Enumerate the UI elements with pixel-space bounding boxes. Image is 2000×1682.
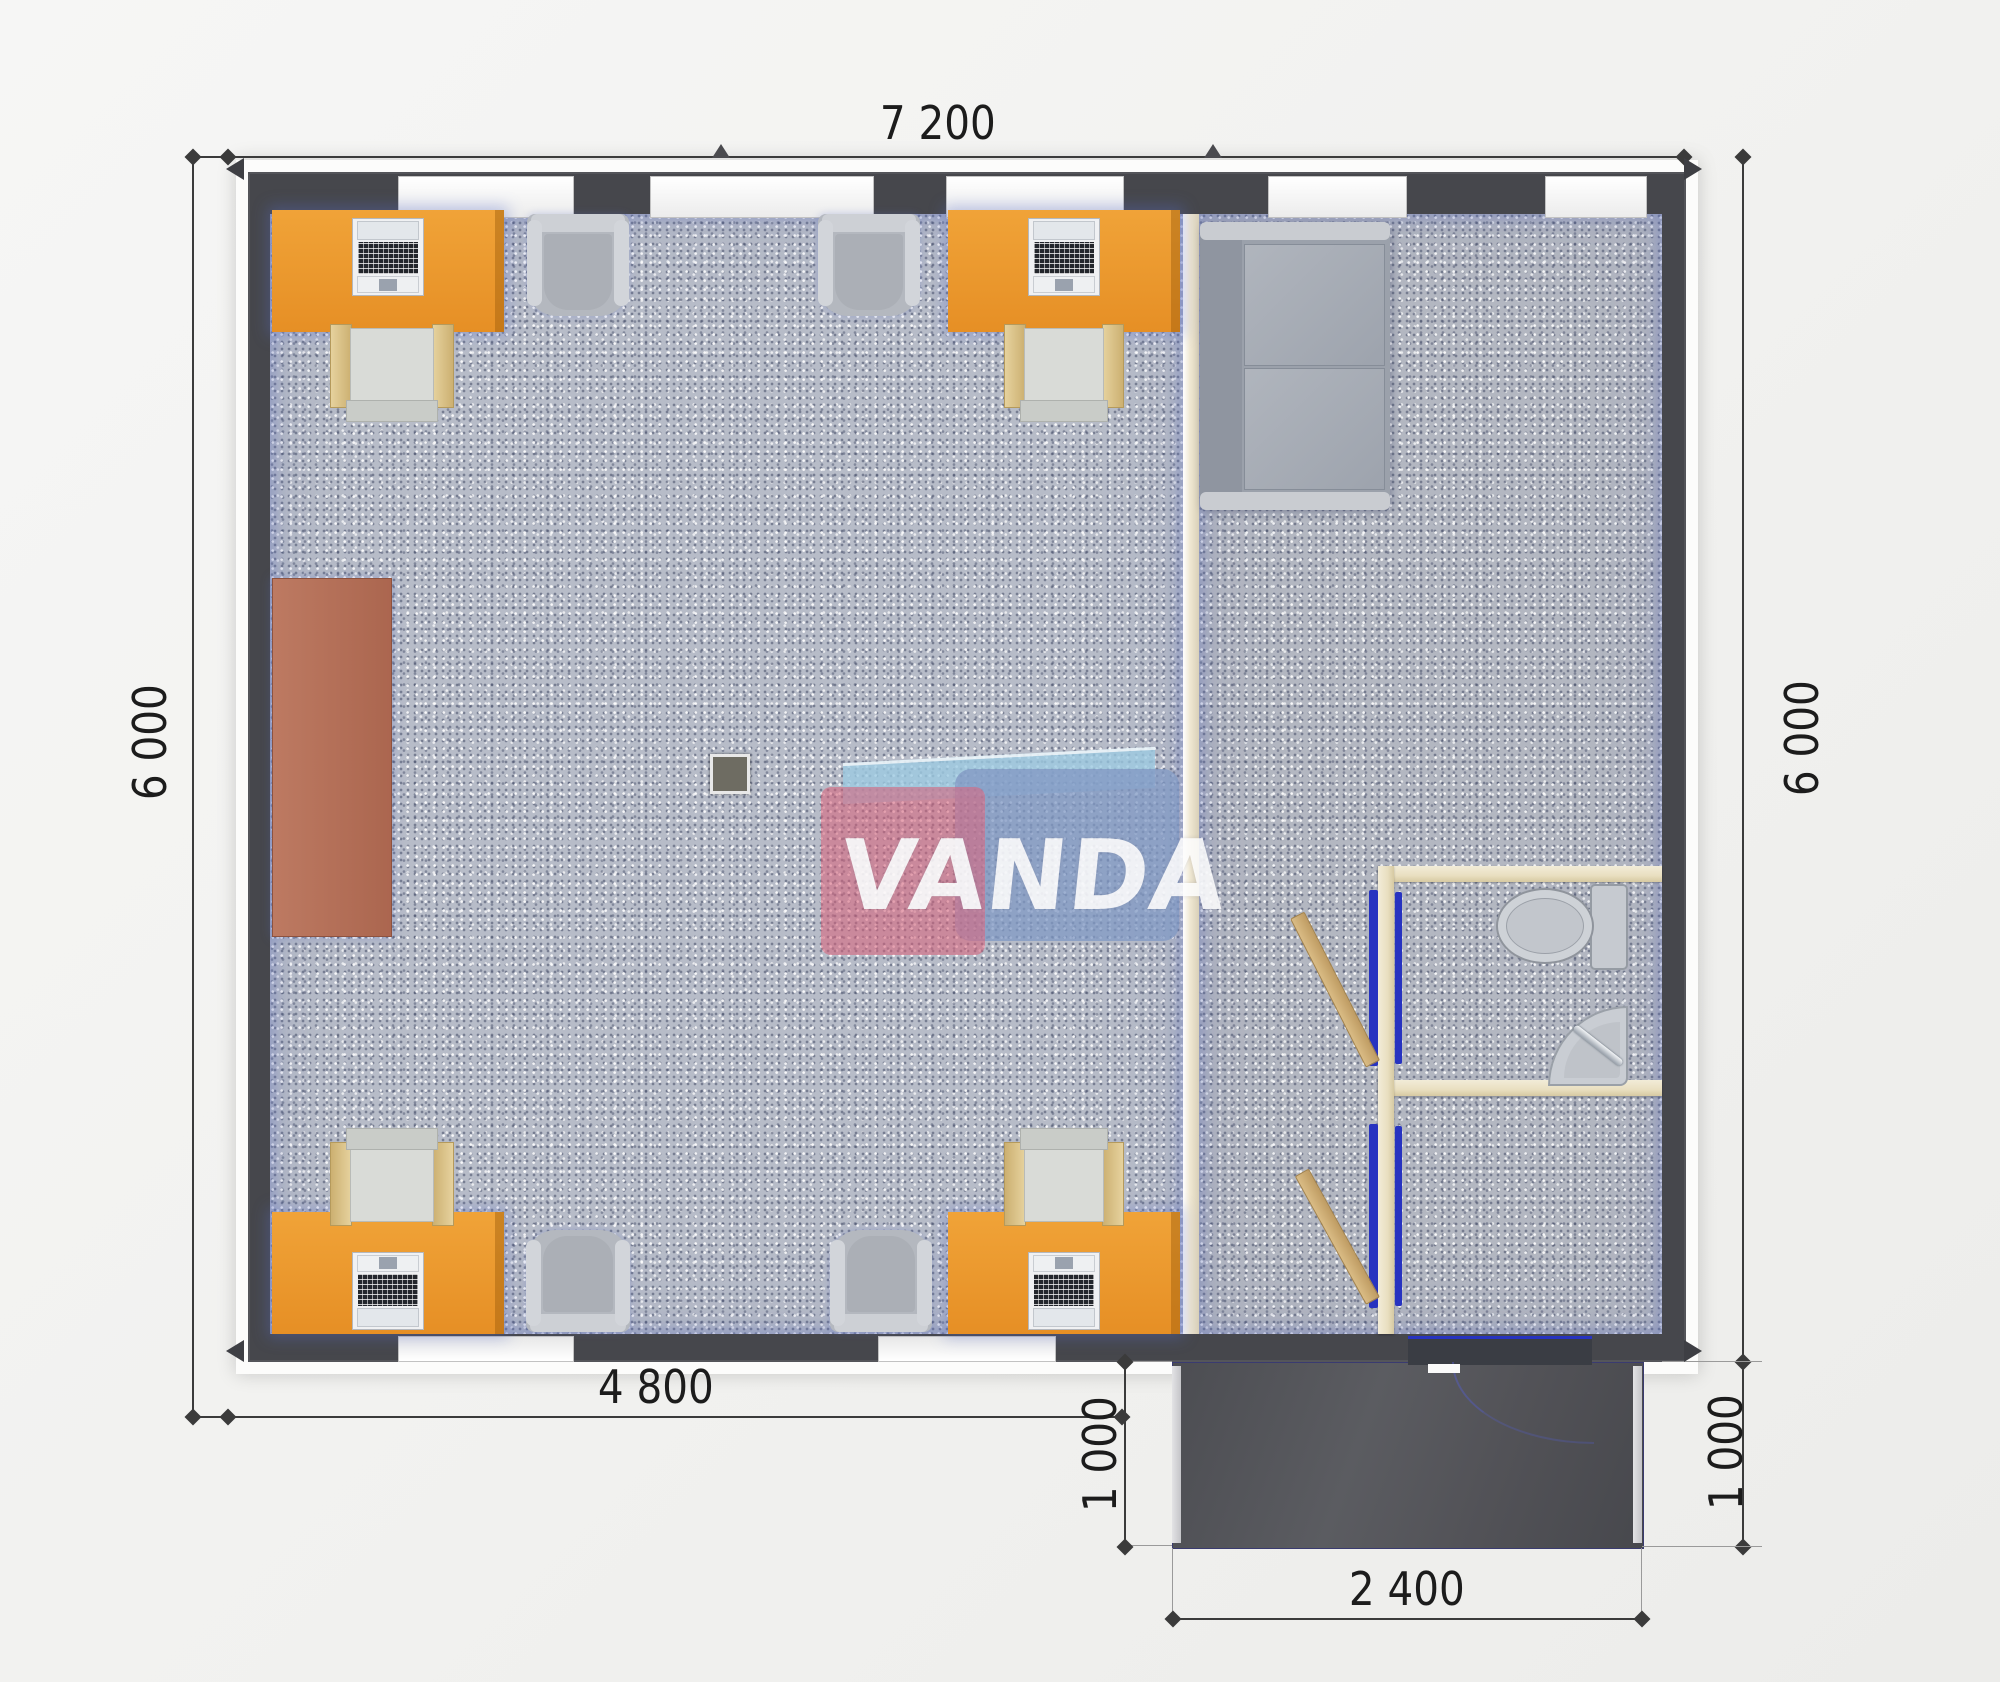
dimension-label-top: 7 200: [838, 98, 1038, 148]
dimension-line-left: [192, 156, 194, 1418]
dimension-label-porch-right: 1 000: [1701, 1362, 1751, 1542]
logo-text: VANDA: [835, 819, 1232, 932]
door-frame: [1369, 890, 1378, 1066]
door-frame: [1395, 892, 1402, 1064]
dimension-marker: [1735, 149, 1752, 166]
monitor-icon: [1033, 221, 1095, 240]
monitor-icon: [357, 1308, 419, 1327]
porch-post: [1633, 1366, 1642, 1543]
vanda-watermark: VANDA: [815, 735, 1195, 970]
module-tick: [1204, 144, 1222, 158]
mouse-icon: [379, 1257, 397, 1269]
corner-arrow: [1684, 1340, 1702, 1362]
toilet: [1496, 888, 1594, 964]
storage-cabinet: [272, 578, 392, 937]
computer: [352, 218, 424, 296]
entrance-door: [1408, 1336, 1592, 1365]
dimension-line-bottom: [186, 1416, 1126, 1418]
armchair: [830, 1230, 932, 1332]
dimension-marker: [1165, 1611, 1182, 1628]
computer: [1028, 1252, 1100, 1330]
dimension-line-top: [186, 156, 1690, 158]
sofa-armrest: [1200, 492, 1390, 510]
door-frame: [1395, 1126, 1402, 1306]
dimension-marker: [185, 149, 202, 166]
floor-plan: VANDA 7 200 6 000 6 000 1 000 4 800 1 00…: [0, 0, 2000, 1682]
dimension-label-porch-left: 1 000: [1075, 1364, 1125, 1544]
dimension-marker: [220, 1409, 237, 1426]
office-chair: [330, 324, 454, 422]
mouse-icon: [1055, 279, 1073, 291]
window: [650, 176, 874, 218]
armchair: [527, 214, 629, 316]
keyboard-icon: [358, 1274, 418, 1306]
sofa-cushion: [1244, 244, 1385, 366]
window: [1545, 176, 1647, 218]
mouse-icon: [1055, 1257, 1073, 1269]
floor-box: [710, 754, 750, 794]
keyboard-icon: [358, 242, 418, 274]
computer: [352, 1252, 424, 1330]
door-step-mark: [1428, 1364, 1460, 1373]
dimension-line-porch-bottom: [1172, 1618, 1642, 1620]
armchair: [818, 214, 920, 316]
mouse-icon: [379, 279, 397, 291]
sofa-back: [1200, 222, 1242, 510]
window: [398, 1336, 574, 1362]
corner-arrow: [1684, 158, 1702, 180]
armchair: [526, 1230, 630, 1332]
office-chair: [330, 1128, 454, 1226]
keyboard-icon: [1034, 242, 1094, 274]
toilet-tank: [1590, 884, 1628, 970]
dimension-label-right: 6 000: [1777, 648, 1827, 828]
porch-post: [1172, 1366, 1181, 1543]
sofa-cushion: [1244, 368, 1385, 490]
corner-arrow: [226, 1340, 244, 1362]
computer: [1028, 218, 1100, 296]
monitor-icon: [357, 221, 419, 240]
dimension-label-left: 6 000: [125, 652, 175, 832]
wc-wall-top: [1378, 866, 1662, 882]
extension-line: [1642, 1546, 1762, 1547]
wc-wall-vertical: [1378, 866, 1394, 1334]
office-chair: [1004, 1128, 1124, 1226]
dimension-line-right: [1742, 156, 1744, 1548]
sofa-armrest: [1200, 222, 1390, 240]
corner-arrow: [226, 158, 244, 180]
office-chair: [1004, 324, 1124, 422]
monitor-icon: [1033, 1308, 1095, 1327]
dimension-label-porch-width: 2 400: [1307, 1564, 1507, 1614]
dimension-marker: [1634, 1611, 1651, 1628]
module-tick: [712, 144, 730, 158]
sofa: [1200, 222, 1390, 510]
window: [1268, 176, 1407, 218]
window: [878, 1336, 1056, 1362]
keyboard-icon: [1034, 1274, 1094, 1306]
dimension-label-bottom: 4 800: [556, 1362, 756, 1412]
